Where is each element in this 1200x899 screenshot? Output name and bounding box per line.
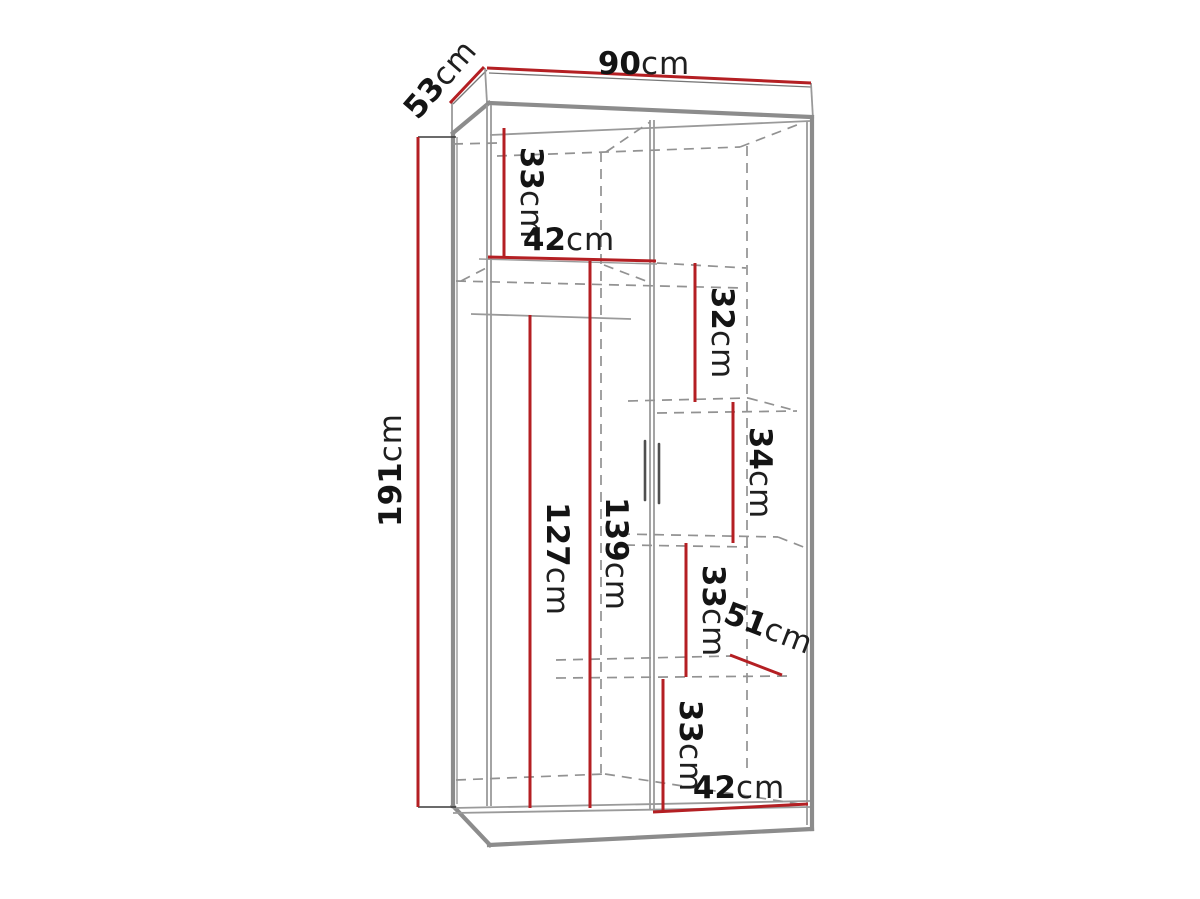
shelf1-left-diagonal xyxy=(461,266,490,281)
shelf2-right-diagonal xyxy=(748,398,797,411)
dim-label-depth-51: 51cm xyxy=(719,595,818,662)
top-slab-right-edge xyxy=(811,83,813,119)
diagram-canvas: 90cm 53cm 191cm 33cm 42cm 32cm 34cm 33cm… xyxy=(0,0,1200,899)
dim-line-depth-51 xyxy=(730,655,782,675)
bottom-front-edge xyxy=(489,829,812,845)
dim-label-sec-34: 34cm xyxy=(742,427,778,519)
dim-label-width-42-bottom: 42cm xyxy=(693,770,785,806)
top-slab-left-bottom-diagonal xyxy=(453,103,489,133)
ceiling-center-diagonal xyxy=(606,122,650,152)
shelf2-front-hidden xyxy=(657,411,797,413)
shelf1-front-hidden xyxy=(657,263,746,268)
top-slab-underside-edge xyxy=(489,103,812,117)
top-slab-front-left-edge xyxy=(485,68,487,103)
dim-label-sec-32: 32cm xyxy=(704,287,740,379)
shelf1-back-hidden xyxy=(456,281,742,288)
dim-label-height: 191cm xyxy=(373,413,409,527)
shelf3-right-diagonal xyxy=(778,537,806,548)
wardrobe-dimension-drawing: 90cm 53cm 191cm 33cm 42cm 32cm 34cm 33cm… xyxy=(0,0,1200,899)
hanging-rail xyxy=(471,314,631,319)
door-handles xyxy=(645,441,659,503)
dim-label-width-top: 90cm xyxy=(598,46,690,82)
dim-label-hang-127: 127cm xyxy=(539,502,575,616)
shelf3-back-hidden xyxy=(620,534,778,537)
shelf2-back-hidden xyxy=(628,398,748,401)
dim-label-int-139: 139cm xyxy=(598,497,634,611)
ceiling-back-left-edge xyxy=(453,143,497,144)
dimension-labels: 90cm 53cm 191cm 33cm 42cm 32cm 34cm 33cm… xyxy=(373,33,818,806)
shelf1-mid-diagonal xyxy=(604,265,646,281)
dim-label-shelf-42-top: 42cm xyxy=(523,222,615,258)
ceiling-back-right-diagonal xyxy=(740,123,802,147)
